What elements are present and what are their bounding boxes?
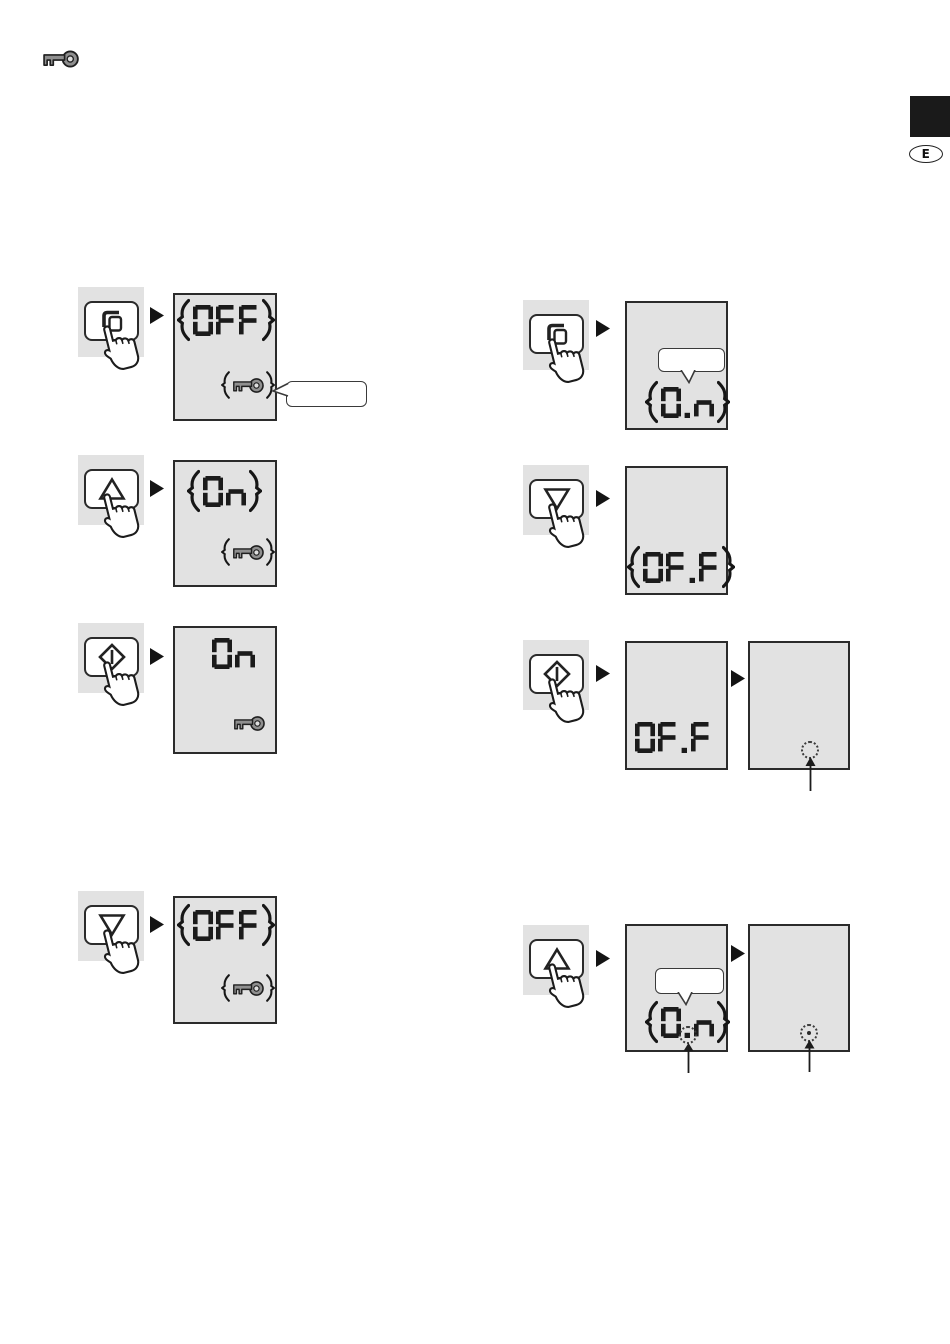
display-value — [193, 305, 259, 336]
flash-mark-icon — [722, 545, 735, 589]
flash-mark-icon — [221, 371, 230, 399]
flash-mark-icon — [717, 1000, 730, 1044]
button-pad — [523, 640, 589, 710]
key-icon — [232, 544, 264, 561]
button-pad — [78, 891, 144, 961]
display-value-row — [645, 380, 730, 424]
step-arrow-icon — [150, 480, 164, 497]
flash-mark-icon — [262, 298, 275, 342]
display-value — [635, 722, 711, 753]
pointer-arrow-icon — [805, 757, 816, 791]
step-arrow-icon — [596, 320, 610, 337]
step-arrow-icon — [731, 945, 745, 962]
lcd-display — [625, 301, 728, 430]
lcd-display — [625, 466, 728, 595]
callout-bubble — [286, 381, 367, 407]
step-arrow-icon — [150, 916, 164, 933]
flash-mark-icon — [717, 380, 730, 424]
display-value-row — [177, 298, 275, 342]
pointer-arrow-icon — [804, 1040, 815, 1072]
callout-bubble — [658, 348, 725, 372]
lcd-display — [173, 626, 277, 754]
flash-mark-icon — [177, 903, 190, 947]
key-indicator-row — [221, 371, 275, 399]
step-arrow-icon — [150, 648, 164, 665]
flash-mark-icon — [177, 298, 190, 342]
lcd-display — [173, 293, 277, 421]
step-arrow-icon — [731, 670, 745, 687]
lcd-display — [625, 924, 728, 1052]
lcd-display — [173, 896, 277, 1024]
display-value-row — [187, 469, 262, 513]
lcd-display — [173, 460, 277, 587]
callout-bubble — [655, 968, 724, 994]
display-value — [193, 910, 259, 941]
decimal-point-dot — [807, 1031, 811, 1035]
key-icon — [232, 980, 264, 997]
lcd-display — [748, 641, 850, 770]
display-value — [203, 476, 246, 507]
page-tab-marker — [910, 96, 950, 137]
flash-mark-icon — [221, 974, 230, 1002]
display-value — [212, 638, 255, 669]
key-icon — [233, 715, 265, 732]
flash-mark-icon — [187, 469, 200, 513]
step-arrow-icon — [596, 665, 610, 682]
key-icon — [42, 49, 79, 69]
flash-mark-icon — [262, 903, 275, 947]
flash-mark-icon — [266, 974, 275, 1002]
button-pad — [523, 925, 589, 995]
flash-mark-icon — [645, 1000, 658, 1044]
button-pad — [78, 287, 144, 357]
button-pad — [78, 455, 144, 525]
button-pad — [523, 300, 589, 370]
key-indicator-row — [221, 974, 275, 1002]
flash-mark-icon — [645, 380, 658, 424]
key-icon — [232, 377, 264, 394]
callout-pointer — [271, 381, 289, 398]
step-arrow-icon — [596, 490, 610, 507]
display-value — [643, 552, 719, 583]
language-badge-label: E — [922, 147, 931, 161]
display-value-row — [627, 545, 735, 589]
manual-page: E — [0, 0, 950, 1344]
flash-mark-icon — [249, 469, 262, 513]
button-pad — [78, 623, 144, 693]
display-value — [661, 387, 714, 418]
display-value-row — [177, 903, 275, 947]
button-pad — [523, 465, 589, 535]
step-arrow-icon — [596, 950, 610, 967]
lcd-display — [748, 924, 850, 1052]
flash-mark-icon — [266, 538, 275, 566]
lcd-display — [625, 641, 728, 770]
language-badge: E — [909, 145, 943, 163]
flash-mark-icon — [627, 545, 640, 589]
step-arrow-icon — [150, 307, 164, 324]
flash-mark-icon — [221, 538, 230, 566]
dotted-circle-highlight — [679, 1026, 697, 1044]
key-indicator-row — [221, 538, 275, 566]
pointer-arrow-icon — [683, 1043, 694, 1073]
